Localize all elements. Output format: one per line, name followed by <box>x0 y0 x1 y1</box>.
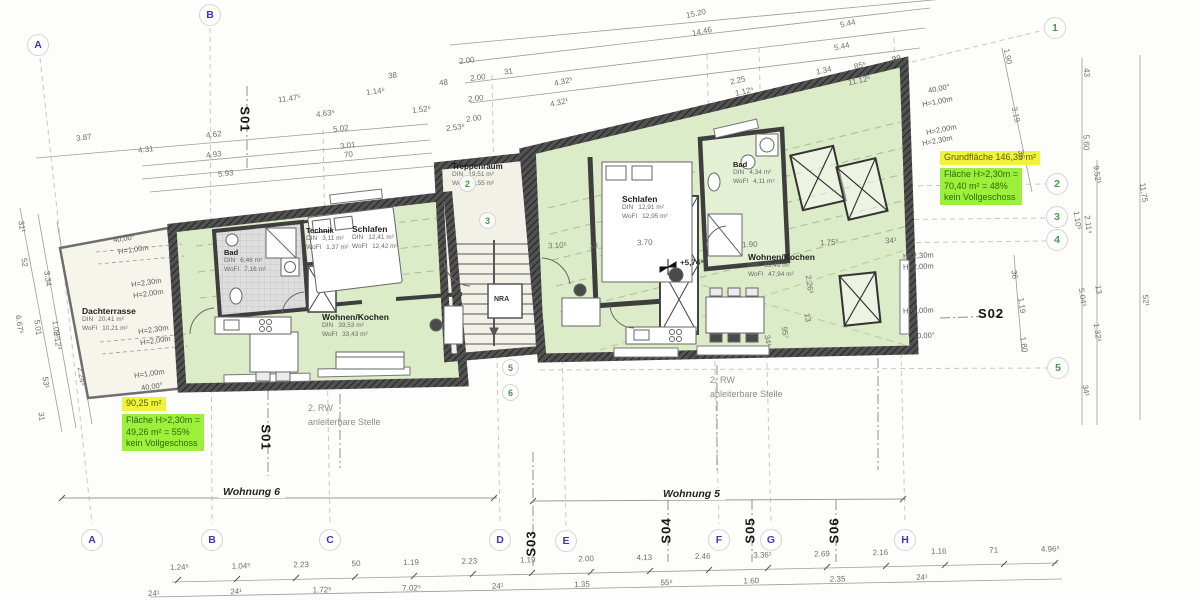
rw-line2: anleiterbare Stelle <box>710 388 783 402</box>
dimension-value: 1.35 <box>574 580 590 589</box>
level-annotation: +5,74⁵ <box>680 258 704 268</box>
dimension-value: 2.69 <box>814 549 830 558</box>
rw-label-right: 2. RW anleiterbare Stelle <box>710 374 783 401</box>
highlight-line: Fläche H>2,30m = <box>944 169 1018 181</box>
height-annotation: H=1,00m <box>903 305 934 315</box>
room-label-bad-w6: Bad DIN6,46 m² WoFl7,16 m² <box>224 248 266 275</box>
dimension-value: 55⁵ <box>660 578 672 587</box>
dimension-value: 1.72⁵ <box>313 585 332 594</box>
dimension-value: 3.70 <box>637 238 653 248</box>
dimension-value: 2.35 <box>830 574 846 583</box>
room-name: Schlafen <box>622 194 668 204</box>
din-label: DIN <box>733 169 744 178</box>
grid-marker-g-bottom: G <box>760 529 782 551</box>
highlight-line: Fläche H>2,30m = <box>126 415 200 427</box>
dimension-value: 34¹ <box>1081 384 1092 397</box>
dimension-value: 24¹ <box>916 573 928 582</box>
grid-marker-b-top: B <box>199 4 221 26</box>
bed-w5 <box>602 162 692 282</box>
dimension-value: 5.93 <box>218 168 235 179</box>
room-label-schlafen-w5: Schlafen DIN12,91 m² WoFl12,95 m² <box>622 194 668 222</box>
dimension-value: 31 <box>503 67 513 77</box>
din-label: DIN <box>82 316 93 325</box>
wofl-label: WoFl <box>352 243 367 252</box>
dimension-value: 1.75⁵ <box>820 238 839 248</box>
dimension-value: 52¹ <box>1141 294 1152 307</box>
dimension-value: 4.96⁵ <box>1041 544 1060 553</box>
dimension-value: 13 <box>802 312 812 322</box>
rw-label-left: 2. RW anleiterbare Stelle <box>308 402 381 429</box>
dimension-value: 1.04⁵ <box>232 561 251 570</box>
grid-marker-b-bottom: B <box>201 529 223 551</box>
highlight-line: kein Vollgeschoss <box>944 192 1018 204</box>
room-name: Schlafen <box>352 224 398 234</box>
wofl-value: 47,94 m² <box>768 271 794 280</box>
highlight-line: kein Vollgeschoss <box>126 438 200 450</box>
dimension-value: 2.00 <box>578 554 594 563</box>
room-name: Bad <box>224 248 266 257</box>
grid-marker-a-top: A <box>27 34 49 56</box>
office-chair-w5 <box>669 268 683 282</box>
dimension-value: 3.36¹ <box>753 550 771 559</box>
dimension-value: 5.02 <box>333 123 350 134</box>
wofl-value: 7,16 m² <box>244 266 266 275</box>
dimension-value: 1.60 <box>743 576 759 585</box>
room-label-bad-w5: Bad DIN4,34 m² WoFl4,11 m² <box>733 160 775 187</box>
height-annotation: H=2,30m <box>903 250 934 260</box>
room-label-schlafen-w6: Schlafen DIN12,41 m² WoFl12,42 m² <box>352 224 398 252</box>
d imension-value: 1.90 <box>742 240 758 250</box>
room-label-wohnen-w6: Wohnen/Kochen DIN39,53 m² WoFl33,43 m² <box>322 312 389 340</box>
dimension-value: 34¹ <box>885 236 897 245</box>
dimension-value: 53¹ <box>41 376 52 389</box>
wofl-label: WoFl <box>306 244 321 253</box>
wofl-value: 33,43 m² <box>342 331 368 340</box>
section-label-s05: S05 <box>743 517 758 543</box>
grid-marker-1-right: 1 <box>1044 17 1066 39</box>
wofl-label: WoFl <box>733 178 748 187</box>
din-value: 12,41 m² <box>368 234 394 243</box>
wofl-label: WoFl <box>224 266 239 275</box>
room-label-dachterrasse: Dachterrasse DIN20,41 m² WoFl10,21 m² <box>82 306 136 334</box>
kitchen-w6 <box>215 317 291 334</box>
wofl-value: 1,37 m² <box>326 244 348 253</box>
section-label-s01-bottom: S01 <box>259 424 274 450</box>
grid-marker-5-right: 5 <box>1047 357 1069 379</box>
section-label-s04: S04 <box>659 517 674 543</box>
grid-marker-2-inner: 2 <box>459 175 476 192</box>
din-value: 3,11 m² <box>322 235 344 244</box>
room-name: Treppenraum <box>452 162 503 171</box>
highlight-line: 49,26 m² = 55% <box>126 427 200 439</box>
grid-marker-d-bottom: D <box>489 529 511 551</box>
din-value: 12,91 m² <box>638 204 664 213</box>
wofl-label: WoFl <box>622 213 637 222</box>
grid-marker-a-bottom: A <box>81 529 103 551</box>
dimension-value: 2.16 <box>872 548 888 557</box>
dimension-value: 71 <box>989 546 998 555</box>
nra-label: NRA <box>494 296 509 303</box>
area-highlight-w6: 90,25 m² <box>122 397 166 411</box>
wofl-label: WoFl <box>322 331 337 340</box>
section-label-s03: S03 <box>524 530 539 556</box>
dimension-value: 2.23 <box>293 560 309 569</box>
dimension-value: 34¹ <box>763 334 774 347</box>
din-value: 59,49 m² <box>764 262 790 271</box>
dimension-value: 1.16 <box>931 547 947 556</box>
grid-marker-f-bottom: F <box>708 529 730 551</box>
room-name: Bad <box>733 160 775 169</box>
flaeche-highlight-w6: Fläche H>2,30m = 49,26 m² = 55% kein Vol… <box>122 414 204 451</box>
kitchen-w5 <box>626 327 696 344</box>
dimension-value: 36 <box>1009 269 1019 279</box>
dimension-value: 99 <box>891 53 902 64</box>
dimension-value: 36 <box>1016 149 1027 160</box>
dimension-value: 31 <box>36 411 46 421</box>
wohnung5-label: Wohnung 5 <box>658 488 725 500</box>
dimension-value: 7.02⁵ <box>402 583 421 592</box>
section-label-s06: S06 <box>827 517 842 543</box>
room-name: Technik <box>306 226 348 235</box>
dimension-value: 2.23 <box>462 557 478 566</box>
dimension-value: 31¹ <box>17 220 28 233</box>
dimension-value: 1.19 <box>520 555 536 564</box>
dimension-value: 1.24⁵ <box>170 563 189 572</box>
din-label: DIN <box>306 235 317 244</box>
dimension-value: 24¹ <box>492 582 504 591</box>
din-value: 6,46 m² <box>240 257 262 266</box>
grid-marker-5-inner: 5 <box>502 359 519 376</box>
sofa-w6 <box>336 352 404 369</box>
dimension-value: 24¹ <box>148 589 160 598</box>
angle-annotation: 40,00° <box>913 331 935 341</box>
dimension-value: 24¹ <box>230 587 242 596</box>
grid-marker-2-right: 2 <box>1046 173 1068 195</box>
dimension-value: 2.00 <box>459 55 476 66</box>
din-label: DIN <box>622 204 633 213</box>
wofl-value: 10,21 m² <box>102 325 128 334</box>
dimension-value: 48 <box>438 78 448 88</box>
dimension-value: 13 <box>589 241 598 250</box>
dimension-value: 4.13 <box>637 553 653 562</box>
wohnung6-label: Wohnung 6 <box>218 486 285 498</box>
wofl-value: 12,42 m² <box>372 243 398 252</box>
dimension-value: 70 <box>343 150 353 160</box>
dimension-value: 5.60 <box>1081 135 1090 151</box>
wofl-label: WoFl <box>748 271 763 280</box>
dimension-value: 52 <box>19 257 29 267</box>
highlight-line: 70,40 m² = 48% <box>944 181 1018 193</box>
grid-marker-3-right: 3 <box>1046 206 1068 228</box>
wofl-value: 4,11 m² <box>753 178 775 187</box>
skylight-window-icon <box>839 272 880 325</box>
room-label-technik: Technik DIN3,11 m² WoFl1,37 m² <box>306 226 348 253</box>
dimension-value: 50 <box>352 559 361 568</box>
dimension-value: 4.31 <box>138 144 155 155</box>
grid-marker-e-bottom: E <box>555 530 577 552</box>
flaeche-highlight-w5: Fläche H>2,30m = 70,40 m² = 48% kein Vol… <box>940 168 1022 205</box>
din-value: 39,53 m² <box>338 322 364 331</box>
dimension-value: 2.00 <box>470 72 487 83</box>
room-name: Dachterrasse <box>82 306 136 316</box>
din-label: DIN <box>748 262 759 271</box>
rw-line1: 2. RW <box>308 402 381 416</box>
grid-marker-c-bottom: C <box>319 529 341 551</box>
dimension-value: 95⁷ <box>780 326 791 339</box>
wofl-value: 12,95 m² <box>642 213 668 222</box>
section-label-s02: S02 <box>978 306 1004 321</box>
din-value: 20,41 m² <box>98 316 124 325</box>
din-label: DIN <box>352 234 363 243</box>
dimension-value: 3.87 <box>76 132 93 143</box>
dimension-value: 4.93 <box>206 149 223 160</box>
grid-marker-3-inner: 3 <box>479 212 496 229</box>
dimension-value: 1.19 <box>403 558 419 567</box>
section-label-s01-top: S01 <box>238 106 253 132</box>
dimension-value: 13 <box>1093 284 1103 294</box>
rw-line1: 2. RW <box>710 374 783 388</box>
rw-line2: anleiterbare Stelle <box>308 416 381 430</box>
dimension-value: 2.46 <box>695 552 711 561</box>
dining-table-w5 <box>706 288 764 342</box>
grid-marker-6-inner: 6 <box>502 384 519 401</box>
room-name: Wohnen/Kochen <box>322 312 389 322</box>
room-name: Wohnen/Kochen <box>748 252 815 262</box>
dimension-value: 2.00 <box>466 113 483 124</box>
grid-marker-4-right: 4 <box>1046 229 1068 251</box>
floor-plan-canvas: Dachterrasse DIN20,41 m² WoFl10,21 m² Ba… <box>0 0 1200 600</box>
height-annotation: H=2,00m <box>903 261 934 271</box>
dimension-value: 4.62 <box>206 129 223 140</box>
dimension-value: 38 <box>387 71 397 81</box>
din-label: DIN <box>322 322 333 331</box>
dimension-value: 2.00 <box>468 93 485 104</box>
dimension-value: 43 <box>1082 68 1091 77</box>
wofl-label: WoFl <box>82 325 97 334</box>
dimension-value: 3.10⁵ <box>548 241 567 251</box>
din-label: DIN <box>224 257 235 266</box>
din-value: 4,34 m² <box>749 169 771 178</box>
